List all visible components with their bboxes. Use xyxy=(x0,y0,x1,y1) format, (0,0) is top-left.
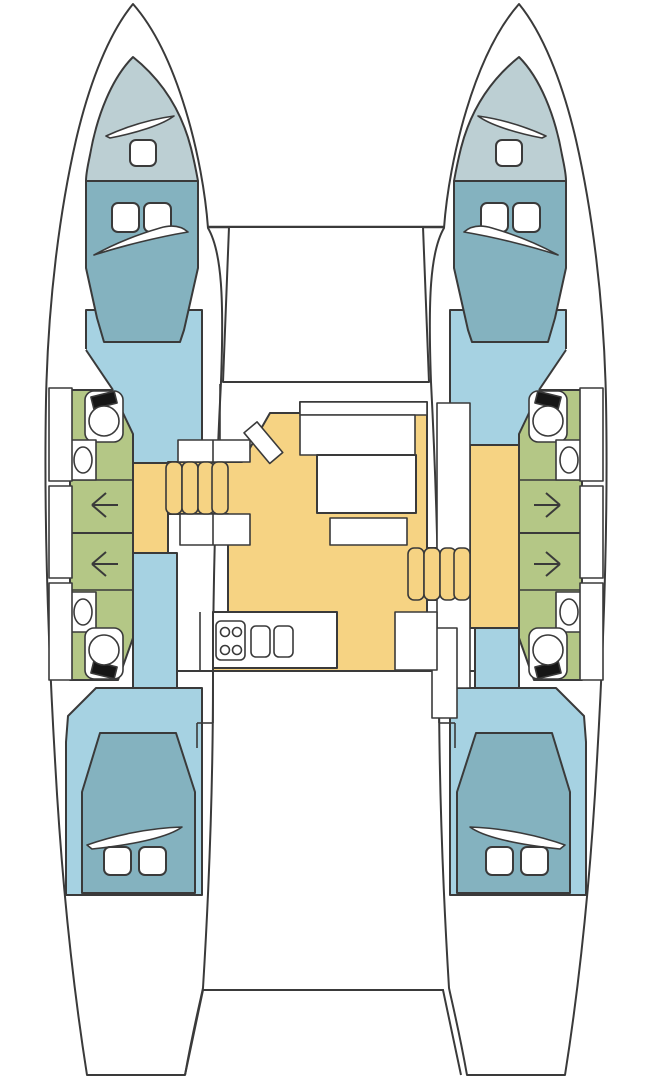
cabinet xyxy=(178,440,250,462)
sofa-backrest xyxy=(300,402,427,415)
catamaran-floorplan xyxy=(0,0,652,1080)
galley-module xyxy=(395,612,437,670)
bench-seat xyxy=(330,518,407,545)
foredeck xyxy=(223,227,429,382)
stove-icon xyxy=(216,621,245,660)
galley-sink-icon xyxy=(274,626,293,657)
companionway-steps-starboard xyxy=(408,548,470,600)
cabinet xyxy=(180,514,250,545)
sofa-seat xyxy=(300,415,415,455)
aft-cockpit-platform xyxy=(185,990,461,1075)
companionway-steps-port xyxy=(166,462,228,514)
saloon-table xyxy=(317,455,416,513)
port-stair-landing xyxy=(133,463,168,553)
galley-sink-icon xyxy=(251,626,270,657)
starboard-stair-landing xyxy=(470,445,519,628)
